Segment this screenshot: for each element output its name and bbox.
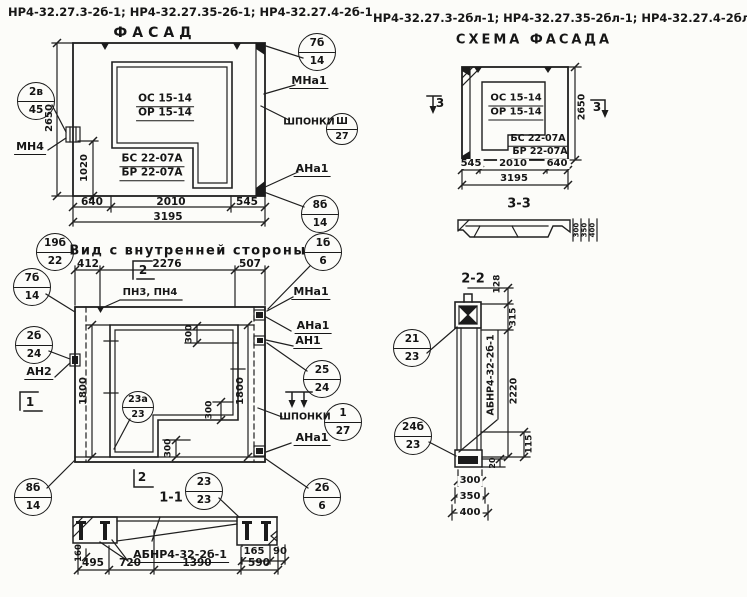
facade-window-mark-top: ОС 15-14 bbox=[136, 93, 194, 107]
section-2-2-dim-128: 128 bbox=[494, 275, 503, 294]
schema-marker-3-right: 3 bbox=[593, 101, 601, 113]
inner-label-an1: АН1 bbox=[293, 335, 322, 349]
inner-dim-507: 507 bbox=[239, 259, 261, 270]
schema-dim-640: 640 bbox=[545, 159, 570, 169]
section-2-2-dim-115: 115 bbox=[526, 435, 535, 454]
section-2-2-balloon-top: 21 23 bbox=[393, 329, 431, 367]
section-1-1-dim-495: 495 bbox=[82, 558, 104, 569]
inner-balloon-an1: 25 24 bbox=[303, 360, 341, 398]
facade-balloon-top-right: 7б 14 bbox=[298, 33, 336, 71]
inner-dim-300-bottom: 300 bbox=[165, 439, 174, 458]
facade-dim-total: 3195 bbox=[153, 212, 182, 223]
schema-window-mark-top: ОС 15-14 bbox=[488, 94, 543, 107]
inner-dim-412: 412 bbox=[77, 259, 99, 270]
inner-balloon-title: 19б 22 bbox=[36, 233, 74, 271]
facade-dim-2010: 2010 bbox=[156, 197, 185, 208]
section-1-1-balloon: 23 23 bbox=[185, 472, 223, 510]
section-2-2-dim-2220: 2220 bbox=[509, 376, 519, 406]
inner-balloon-mna1: 1б 6 bbox=[304, 233, 342, 271]
profile-dim-350: 350 bbox=[582, 223, 589, 238]
inner-dim-300-top: 300 bbox=[186, 325, 195, 344]
title-codes-left: НР4-32.27.3-2б-1; НР4-32.27.35-2б-1; НР4… bbox=[8, 7, 373, 19]
section-2-2-label-abnr: АБНР4-32-2б-1 bbox=[486, 334, 496, 415]
section-3-3-label: 3-3 bbox=[507, 198, 531, 211]
section-2-2-dim-300: 300 bbox=[458, 476, 483, 486]
section-1-1-dim-165: 165 bbox=[242, 547, 267, 557]
section-1-1-label-abnr: АБНР4-32-2б-1 bbox=[131, 549, 229, 563]
inner-label-shponki: ШПОНКИ bbox=[279, 412, 330, 422]
inner-label-mna1: МНа1 bbox=[291, 286, 330, 300]
section-1-1-dim-90: 90 bbox=[273, 547, 287, 557]
section-marker-2-top: 2 bbox=[139, 264, 147, 276]
inner-balloon-bottom-left: 8б 14 bbox=[14, 478, 52, 516]
facade-label-ana1: АНа1 bbox=[294, 163, 331, 177]
schema-title: СХЕМА ФАСАДА bbox=[456, 34, 612, 47]
schema-dim-height: 2650 bbox=[577, 94, 587, 120]
profile-dim-300: 300 bbox=[574, 223, 581, 238]
inner-dim-300-mid: 300 bbox=[206, 401, 215, 420]
section-2-2-title: 2-2 bbox=[461, 273, 485, 286]
section-1-1-dim-590: 590 bbox=[248, 558, 270, 569]
facade-title: ФАСАД bbox=[113, 26, 196, 40]
facade-dim-545: 545 bbox=[236, 197, 258, 208]
section-2-2-balloon-bottom: 24б 23 bbox=[394, 417, 432, 455]
schema-window-mark-bottom: ОР 15-14 bbox=[488, 108, 543, 121]
section-2-2-dim-400: 400 bbox=[458, 508, 483, 518]
inner-dim-1800-right: 1800 bbox=[236, 377, 246, 405]
section-1-1-dim-720: 720 bbox=[119, 558, 141, 569]
inner-balloon-left-top: 7б 14 bbox=[13, 268, 51, 306]
inner-label-ana1-top: АНа1 bbox=[295, 320, 332, 334]
section-2-2-dim-350: 350 bbox=[458, 492, 483, 502]
schema-dim-545: 545 bbox=[459, 159, 484, 169]
facade-balloon-anchor: 2в 45 bbox=[17, 82, 55, 120]
drawing-sheet: НР4-32.27.3-2б-1; НР4-32.27.35-2б-1; НР4… bbox=[0, 0, 747, 597]
inner-balloon-shponki: 1 27 bbox=[324, 403, 362, 441]
schema-dim-2010: 2010 bbox=[497, 159, 529, 169]
inner-balloon-bottom-right: 2б 6 bbox=[303, 478, 341, 516]
facade-block-mark-bottom: БР 22-07А bbox=[119, 167, 184, 181]
facade-dim-1020: 1020 bbox=[80, 154, 90, 182]
profile-dim-400: 400 bbox=[590, 223, 597, 238]
section-marker-2-bottom: 2 bbox=[138, 471, 146, 483]
section-1-1-dim-1390: 1390 bbox=[182, 558, 211, 569]
inner-balloon-corner: 23а 23 bbox=[122, 391, 154, 423]
schema-dim-total: 3195 bbox=[498, 174, 530, 184]
inner-label-pn: ПН3, ПН4 bbox=[123, 288, 178, 298]
section-2-2-dim-315: 315 bbox=[510, 308, 519, 327]
facade-balloon-bottom-right: 8б 14 bbox=[301, 195, 339, 233]
schema-marker-3-left: 3 bbox=[436, 97, 444, 109]
inner-view-title: Вид с внутренней стороны bbox=[69, 245, 306, 258]
inner-balloon-an2: 2б 24 bbox=[15, 326, 53, 364]
facade-block-mark-top: БС 22-07А bbox=[119, 153, 184, 167]
inner-dim-2276: 2276 bbox=[152, 259, 181, 270]
facade-label-mn4: МН4 bbox=[14, 141, 46, 155]
section-2-2-dim-20: 20 bbox=[489, 457, 497, 468]
balloon-top-value: 23а bbox=[123, 392, 153, 407]
facade-label-mna1: МНа1 bbox=[289, 75, 328, 89]
title-codes-right: НР4-32.27.3-2бл-1; НР4-32.27.35-2бл-1; Н… bbox=[373, 13, 747, 25]
facade-dim-640: 640 bbox=[81, 197, 103, 208]
balloon-top-value: Ш bbox=[327, 114, 357, 129]
inner-dim-1800-left: 1800 bbox=[79, 377, 89, 405]
facade-window-mark-bottom: ОР 15-14 bbox=[136, 107, 194, 121]
facade-balloon-shponki: Ш 27 bbox=[326, 113, 358, 145]
drawing-linework bbox=[0, 0, 747, 597]
section-marker-1-left: 1 bbox=[26, 396, 34, 408]
inner-label-ana1-bottom: АНа1 bbox=[294, 432, 331, 446]
section-1-1-title: 1-1 bbox=[159, 492, 183, 505]
schema-block-mark-top: БС 22-07А bbox=[508, 134, 567, 147]
inner-label-an2: АН2 bbox=[24, 366, 53, 380]
